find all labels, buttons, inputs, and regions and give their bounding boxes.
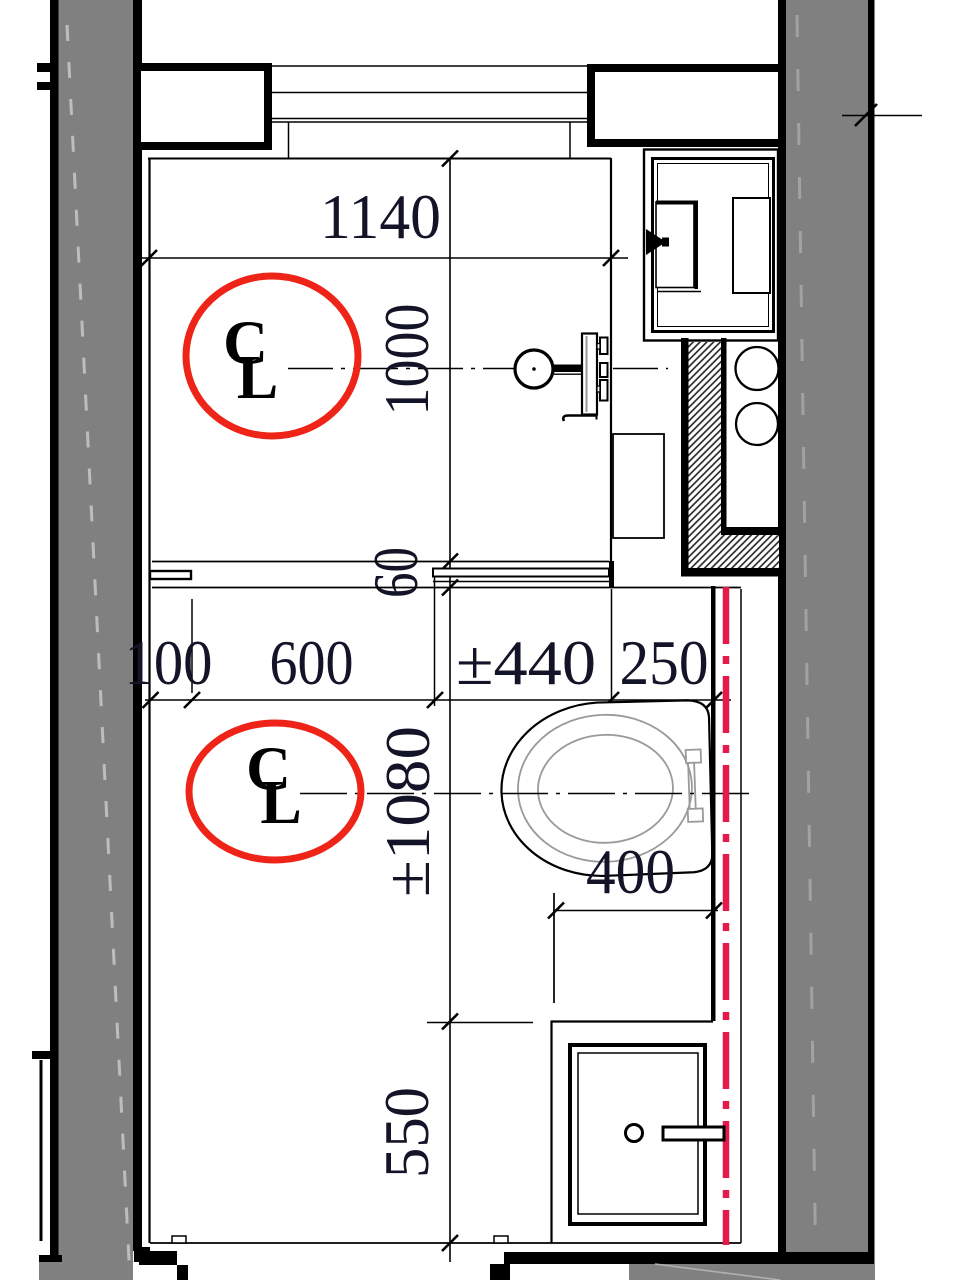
svg-text:550: 550 (371, 1087, 442, 1178)
svg-text:60: 60 (360, 547, 431, 598)
svg-text:L: L (260, 769, 301, 837)
svg-text:600: 600 (270, 627, 354, 698)
svg-text:100: 100 (125, 627, 213, 698)
svg-text:250: 250 (620, 627, 709, 698)
svg-text:1140: 1140 (320, 181, 441, 252)
svg-text:1000: 1000 (371, 304, 442, 416)
svg-text:L: L (237, 344, 278, 412)
svg-text:±1080: ±1080 (372, 726, 443, 897)
svg-text:400: 400 (586, 836, 675, 907)
svg-text:±440: ±440 (456, 627, 596, 698)
